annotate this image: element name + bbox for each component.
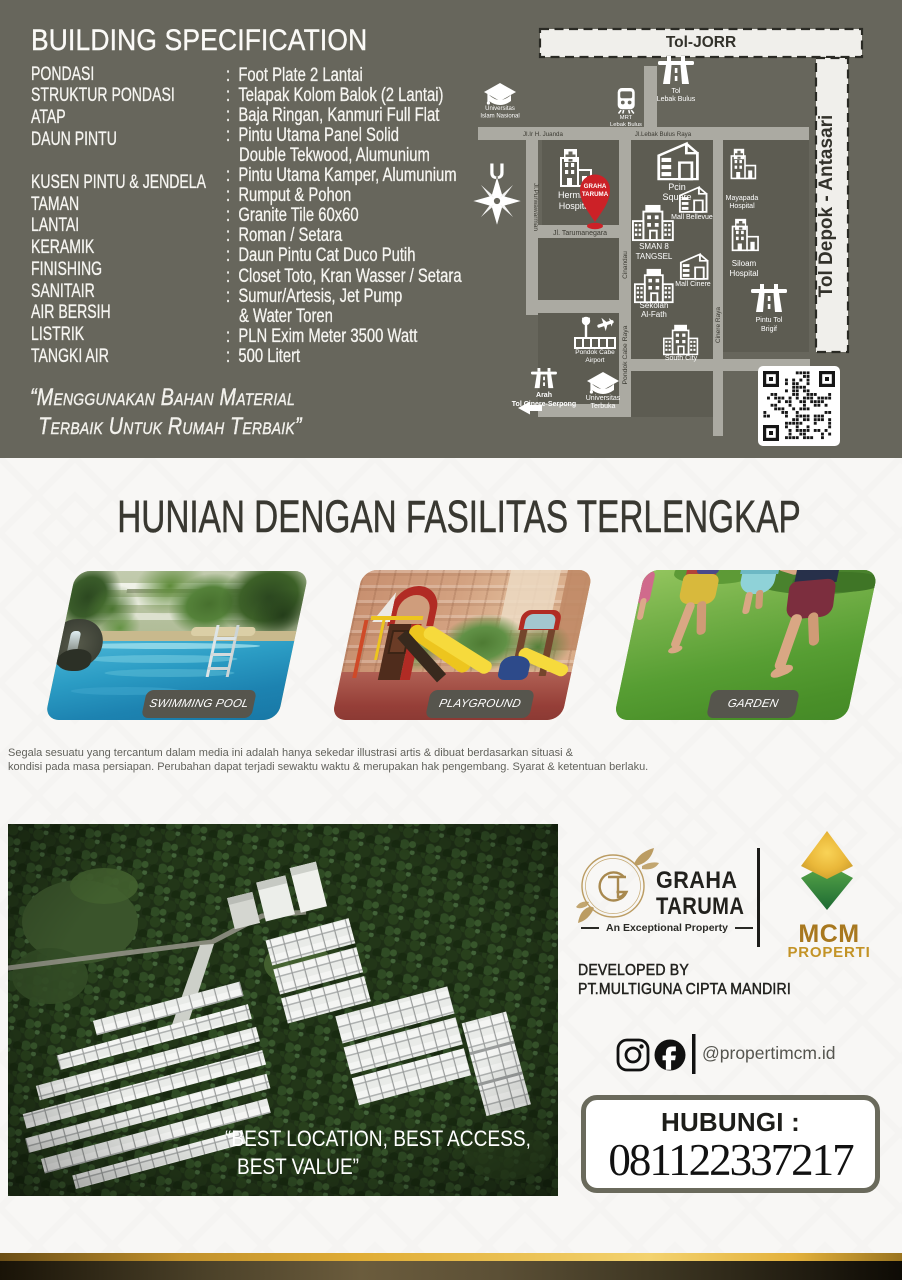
svg-text:Pcin: Pcin [668, 182, 686, 192]
svg-text:Mall Cinere: Mall Cinere [675, 281, 711, 288]
svg-text:MRT: MRT [620, 115, 633, 121]
svg-text:TARUMA: TARUMA [582, 191, 609, 198]
svg-text:“BEST LOCATION, BEST ACCESS,: “BEST LOCATION, BEST ACCESS, [225, 1126, 531, 1151]
svg-text:SMAN 8: SMAN 8 [639, 242, 669, 251]
svg-text:Lebak Bulus: Lebak Bulus [657, 96, 696, 103]
svg-text:GRAHA: GRAHA [584, 183, 607, 190]
svg-text:Jl.Purwawarman: Jl.Purwawarman [532, 183, 539, 231]
svg-text:Hospital: Hospital [730, 269, 759, 278]
svg-text:Jl.Ir H. Juanda: Jl.Ir H. Juanda [523, 131, 563, 138]
svg-text:Mall Bellevue: Mall Bellevue [671, 214, 713, 221]
svg-text:Tol-JORR: Tol-JORR [666, 34, 736, 51]
svg-text:Pondok Cabe: Pondok Cabe [575, 349, 615, 356]
svg-text:Universitas: Universitas [485, 106, 515, 112]
svg-text:South City: South City [665, 355, 698, 362]
svg-text:Hospital: Hospital [729, 203, 755, 210]
svg-text:Square: Square [662, 192, 691, 202]
svg-text:Tol: Tol [672, 88, 681, 95]
svg-text:Airport: Airport [585, 357, 604, 364]
svg-text:Universitas: Universitas [586, 395, 621, 402]
svg-text:Pintu Tol: Pintu Tol [756, 317, 783, 324]
svg-text:Pondok Cabe Raya: Pondok Cabe Raya [622, 325, 629, 384]
svg-text:Jl. Tarumanegara: Jl. Tarumanegara [553, 230, 607, 237]
svg-text:Cinandau: Cinandau [622, 251, 629, 279]
svg-text:Tol Depok - Antasari: Tol Depok - Antasari [816, 115, 837, 298]
svg-text:BEST VALUE”: BEST VALUE” [237, 1154, 359, 1179]
svg-text:Jl.Lebak Bulus Raya: Jl.Lebak Bulus Raya [635, 131, 692, 138]
svg-text:TANGSEL: TANGSEL [636, 252, 673, 261]
svg-text:Cinere Raya: Cinere Raya [715, 307, 722, 344]
svg-text:Terbuka: Terbuka [591, 403, 616, 410]
svg-text:Siloam: Siloam [732, 259, 757, 268]
svg-text:Islam Nasional: Islam Nasional [480, 114, 519, 120]
svg-text:Brigif: Brigif [761, 326, 777, 333]
svg-text:Sekolah: Sekolah [640, 301, 669, 310]
svg-text:Mayapada: Mayapada [726, 195, 759, 202]
svg-text:Lebak Bulus: Lebak Bulus [610, 122, 642, 128]
svg-text:Al-Fath: Al-Fath [641, 310, 667, 319]
svg-text:Arah: Arah [536, 392, 552, 399]
